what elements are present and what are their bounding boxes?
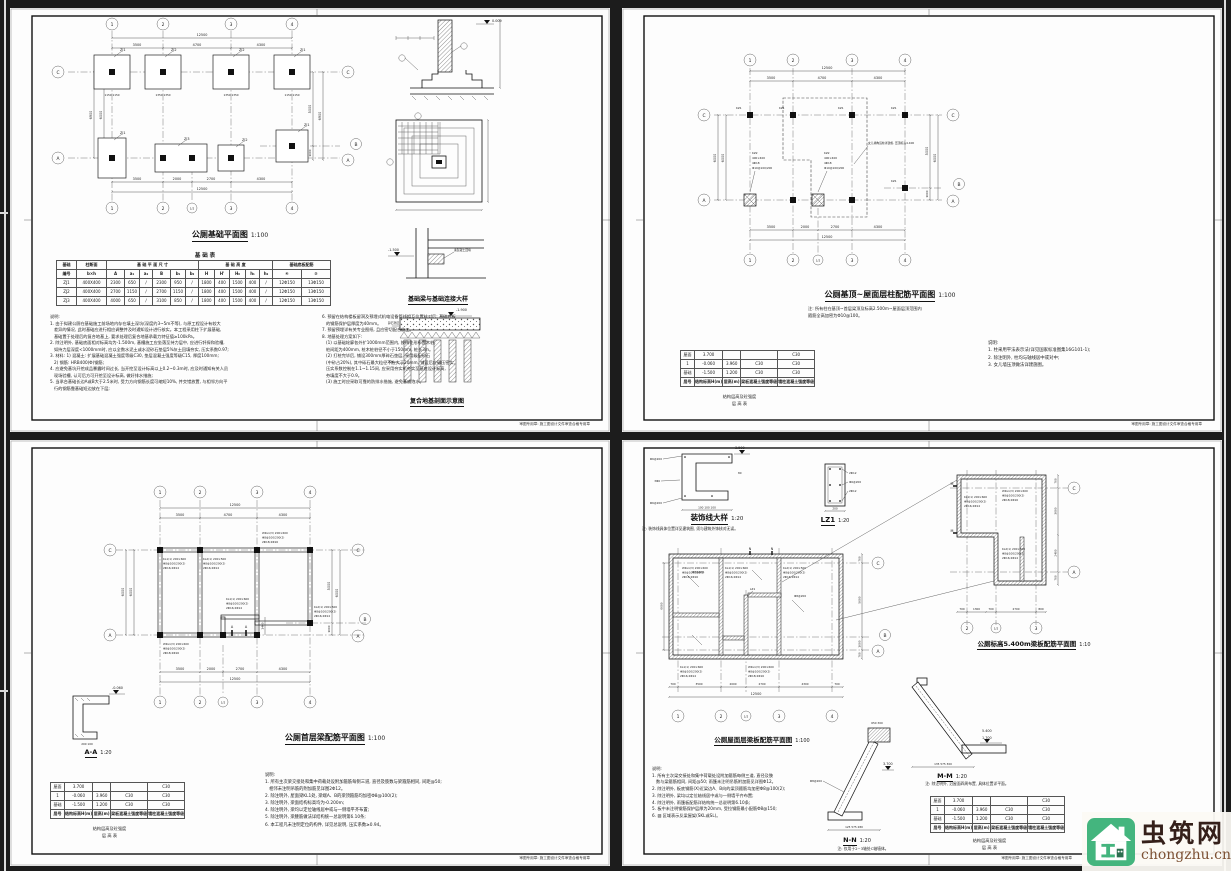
detail-title-scale: 1:20 <box>100 750 111 756</box>
dim-label: 3500 <box>133 177 142 181</box>
annotation-line: WKL1(3) 200×600 <box>163 642 189 646</box>
dim-label: 6000 <box>933 154 937 163</box>
dim-label: 700 <box>858 652 862 658</box>
axis-label: A <box>1072 570 1075 576</box>
level-label: 3.700 <box>883 762 893 766</box>
section-mark-label: A <box>245 625 248 629</box>
axis-label: A <box>108 633 111 639</box>
detail-title-text: 基础梁与基础连接大样 <box>408 294 468 305</box>
title-scale: 1:100 <box>368 735 385 742</box>
dim-label: 4700 <box>193 43 202 47</box>
dim-label: 4300 <box>801 682 808 686</box>
dim-label: 80 <box>738 471 742 475</box>
annotation-line: 2Φ18;2Φ16 <box>163 651 179 655</box>
annotation-line: 4Φ18 <box>824 161 832 165</box>
annotation-line: Φ8@100/200(2) <box>314 610 336 614</box>
dim-label: 6000 <box>121 588 125 597</box>
roof-plan: Φ8@200 Φ8@200 LZ1 N N WKL1(3) 200×600 Φ8… <box>660 547 891 722</box>
detail-title: A-A 1:20 <box>68 748 128 758</box>
detail-title-text: A-A <box>85 748 98 758</box>
drawing-title: 公厕基础平面图 1:100 <box>160 229 300 242</box>
annotation-line: Φ8@100/200(2) <box>163 647 185 651</box>
dim-label: 1400 <box>261 622 265 629</box>
dim-label: 4300 <box>874 225 883 229</box>
detail-title: N-N 1:20 <box>827 836 887 846</box>
axis-label: 3 <box>851 258 854 264</box>
page-edge-right <box>1224 0 1226 871</box>
detail-title: 复合地基剖面示意图 <box>382 396 492 407</box>
chongzhu-logo-icon <box>1087 818 1135 866</box>
dim-label: 12500 <box>822 235 833 239</box>
axis-label: 2 <box>966 626 969 632</box>
notes: 说明:1. 柱采用平法表示法(详见国家标准图集16G101-1);2. 除注明外… <box>988 340 1188 370</box>
column-annotation-kz2-1: KZ2 400×400 4Φ18 Φ10@100/200 <box>750 151 772 192</box>
pad-label: ZJ2 <box>242 138 247 142</box>
annotation-line: 2Φ16;2Φ14 <box>203 566 219 570</box>
annotation-line: 400×400 <box>752 156 765 160</box>
axis-label: 3 <box>1035 626 1038 632</box>
dim-label: 6000 <box>129 588 133 597</box>
annotation-line: Φ8@100/200(2) <box>682 571 704 575</box>
dim-label: 700 <box>670 682 676 686</box>
dim-label: 4300 <box>279 667 288 671</box>
dim-label: 200 100 <box>81 742 93 746</box>
axis-label: 1/2 <box>744 715 749 719</box>
dim-label: 3500 <box>176 667 185 671</box>
rebar-label: Φ6@200 <box>650 501 662 505</box>
detail-title: 基础梁与基础连接大样 <box>378 294 498 305</box>
axis-label: A <box>876 649 879 655</box>
elevation-5400-plan: M M KL1(1) 200×600 Φ8@100/200(2) 2Φ16;2Φ… <box>950 470 1080 634</box>
dim-label: 100 100 100 <box>698 506 716 510</box>
annotation-line: KL1(1) 200×600 <box>725 566 748 570</box>
dim-label: 2700 <box>831 225 840 229</box>
title-text: 公厕基顶~屋面层柱配筋平面图 <box>825 289 936 302</box>
footing-section-detail: 0.000 <box>396 19 502 100</box>
sheet-footer: 审图专用章: 施工图设计文件审查合格专用章 <box>340 422 590 427</box>
title-text: 公厕首层梁配筋平面图 <box>285 732 365 745</box>
pad-label: ZJ1 <box>120 131 125 135</box>
dim-label: 700 <box>834 682 840 686</box>
drawing-title: 公厕标高5.400m梁板配筋平面图 1:10 <box>944 638 1124 650</box>
floor-table: 屋面3.700C301-0.0603.960C30C30基础-1.5001.20… <box>930 796 1065 833</box>
pad-dim: 1150 1150 <box>104 93 119 97</box>
axis-label: 3 <box>230 206 233 212</box>
dim-label: 6900 <box>318 112 322 121</box>
detail-title-scale: 1:20 <box>731 516 743 522</box>
dim-label: 5000 <box>327 582 331 591</box>
notes: 说明:1. 所有主次梁交接处和集中荷载处设附加箍筋每侧三道, 直径及肢 数与梁箍… <box>652 766 824 820</box>
watermark-domain: chongzhu.cn <box>1141 848 1231 862</box>
detail-note: 注: 装饰线具体位置详见建筑图, 须与建筑外饰核对无误。 <box>642 526 802 532</box>
annotation-line: KZ2 <box>824 151 830 155</box>
sheet-footer: 审图专用章: 施工图设计文件审查合格专用章 <box>952 422 1202 427</box>
dim-label: 125 575 280 <box>845 825 863 829</box>
table-caption: 结构层高及砼强度层 高 表 <box>942 838 1037 851</box>
axis-label: 3 <box>230 22 233 28</box>
watermark-text: 虫筑网 chongzhu.cn <box>1141 821 1231 862</box>
annotation-line: KL2(1) 200×500 <box>203 557 226 561</box>
axis-label: 3 <box>851 58 854 64</box>
page-tick-left-1 <box>0 212 8 214</box>
foundation-table: 基础柱断面基 础 平 面 尺 寸基 础 高 度基础底板配筋编号b×hAa₁a₂B… <box>56 260 331 306</box>
section-marks: A A <box>231 625 248 636</box>
dim-label: 3500 <box>695 682 702 686</box>
annotation-line: KL1(1) 200×600 <box>163 557 186 561</box>
dim-label: 4700 <box>818 76 827 80</box>
dim-label: 5000 <box>925 147 929 156</box>
axis-label: 1 <box>159 490 162 496</box>
detail-title-text: LZ1 <box>821 516 835 526</box>
dim-label: 3500 <box>176 513 185 517</box>
annotation-line: KL1(1) 200×600 <box>226 597 249 601</box>
section-a-a-detail: -0.060 200 100 <box>73 686 125 746</box>
annotation-line: 2Φ18;2Φ16 <box>262 540 278 544</box>
title-text: 公厕标高5.400m梁板配筋平面图 <box>977 638 1076 650</box>
dim-label: 700 <box>1054 575 1058 581</box>
sheet-foundation-plan: 1 2 3 4 1 2 1/2 3 4 C A C B A <box>10 8 610 432</box>
pad-label: ZJ3 <box>184 137 189 141</box>
axis-label: 1/2 <box>190 207 195 211</box>
axis-label: 4 <box>309 700 312 706</box>
axis-label: C <box>1072 486 1075 492</box>
annotation-line: 2Φ18;2Φ16 <box>748 674 764 678</box>
dim-label: 1300 <box>973 607 980 611</box>
dim-label: 2700 <box>758 682 765 686</box>
axis-label: C <box>951 113 954 119</box>
annotation-line: 2Φ16;2Φ14 <box>314 614 330 618</box>
axis-label: 4 <box>291 22 294 28</box>
annotation-line: Φ8@100/200(2) <box>1002 552 1024 556</box>
annotation-line: 400×400 <box>824 156 837 160</box>
table-caption: 结构层高及砼强度层 高 表 <box>62 826 157 839</box>
detail-title-scale: 1:20 <box>838 518 849 524</box>
dim-label: 5000 <box>308 105 312 114</box>
dim-label: 12500 <box>197 187 208 191</box>
watermark: 虫筑网 chongzhu.cn <box>1082 812 1231 871</box>
rebar-label: 2Φ12 <box>849 489 857 493</box>
annotation-line: Φ8@100/200(2) <box>783 571 805 575</box>
dim-label: 12500 <box>230 677 241 681</box>
dim-label: 1000 <box>308 149 312 156</box>
annotation-line: KL1(1) 200×600 <box>680 665 703 669</box>
axis-label: 2 <box>162 206 165 212</box>
table-title: 基 础 表 <box>160 251 250 259</box>
axis-label: A <box>346 158 349 164</box>
axis-label: 1/2 <box>221 701 226 705</box>
annotation-line: 2Φ16;2Φ14 <box>964 504 980 508</box>
notes-left: 说明:1. 由于拟建公厕在基础施工前场地内存在填土深坑(深度约3~5m不等), … <box>50 314 318 392</box>
axis-label: 1/2 <box>816 259 821 263</box>
footing-plan-detail <box>387 113 488 210</box>
title-text: 公厕屋面层梁板配筋平面图 <box>714 734 792 746</box>
dim-label: 4300 <box>874 76 883 80</box>
axis-label: A <box>702 198 705 204</box>
drawing-title: 公厕屋面层梁板配筋平面图 1:100 <box>692 734 832 746</box>
axis-label: 2 <box>792 58 795 64</box>
detail-title-text: 复合地基剖面示意图 <box>410 396 464 407</box>
axis-label: 1/2 <box>994 627 999 631</box>
axis-label: 1 <box>749 258 752 264</box>
level-label: 5.400 <box>982 729 992 733</box>
dim-label: 3500 <box>767 225 776 229</box>
notes-right: 6. 预留在结构楼板留洞及预埋式机电设备管线相互位置核对后; 基础底板 的钢筋保… <box>322 314 572 386</box>
annotation-line: Φ8@100/200(2) <box>725 571 747 575</box>
dim-label: 650 300 <box>871 721 883 725</box>
axis-label: 4 <box>904 258 907 264</box>
title-note: 注: 所有柱在基顶~首层梁顶及标高2.500m~屋面层顶范围内箍筋全高加密为Φ1… <box>808 306 988 319</box>
column-label: KZ1 <box>779 106 785 110</box>
section-m-m-detail: 5.400 1.700 135 575 300 <box>912 678 1006 767</box>
axis-label: A <box>951 199 954 205</box>
annotation-line: Φ8@100/200(2) <box>680 670 702 674</box>
title-scale: 1:100 <box>938 292 955 299</box>
dim-label: 4300 <box>257 177 266 181</box>
annotation-line: Φ8@100/200(2) <box>203 562 225 566</box>
axis-label: C <box>356 548 359 554</box>
axis-label: B <box>354 142 357 148</box>
level-label: 0.000 <box>492 19 502 23</box>
annotation-line: 2Φ16;2Φ14 <box>163 566 179 570</box>
cad-drawing-viewer: 1 2 3 4 1 2 1/2 3 4 C A C B A <box>0 0 1231 871</box>
detail-note: 注: 除注明外, 沿屋面四周布置, 具体位置详平面。 <box>907 781 1027 787</box>
rebar-label: Φ6@200 <box>849 480 861 484</box>
axis-label: C <box>702 113 705 119</box>
title-text: 公厕基础平面图 <box>192 229 248 242</box>
rebar-label: Φ8@200 <box>794 594 806 598</box>
dim-label: 6000 <box>713 154 717 163</box>
level-label: -1.500 <box>388 248 399 252</box>
detail-title-scale: 1:20 <box>956 774 967 780</box>
dim-label: 2700 <box>207 177 216 181</box>
dim-label: 2400 <box>1054 549 1058 556</box>
foundation-pads: ZJ1 ZJ2 ZJ2 ZJ1 1150 1150 1350 1350 1350… <box>94 48 310 178</box>
sheet-column-plan: 1 2 3 4 1 2 1/2 3 4 C A C B A <box>622 8 1222 432</box>
detail-note: 注: 仅用于2~3轴处C轴墙体。 <box>818 846 908 852</box>
dim-label: 6900 <box>89 111 93 120</box>
dim-label: 5000 <box>858 596 862 603</box>
column-label: KZ1 <box>891 179 897 183</box>
detail-connector-lines <box>782 480 994 620</box>
dim-label: 700 <box>988 607 994 611</box>
sheet-footer: 审图专用章: 施工图设计文件审查合格专用章 <box>340 856 590 861</box>
drawing-title: 公厕基顶~屋面层柱配筋平面图 1:100 <box>790 289 990 302</box>
axis-label: 4 <box>831 714 834 720</box>
dim-label: 700 <box>1054 478 1058 484</box>
dim-label: 700 <box>858 556 862 562</box>
page-edge-left <box>4 0 6 871</box>
axis-label: 2 <box>162 22 165 28</box>
dimensions: 12500 3500 4700 4300 3500 2000 2700 4300… <box>121 503 340 682</box>
sheet-footer: 审图专用章: 施工图设计文件审查合格专用章 <box>862 856 1072 861</box>
axis-label: C <box>108 548 111 554</box>
material-label: 素混凝土回填 <box>454 248 471 252</box>
annotation-line: WKL1(3) 200×600 <box>748 665 774 669</box>
detail-title-text: 装饰线大样 <box>691 512 729 525</box>
dim-label: 6000 <box>99 111 103 120</box>
detail-title-scale: 1:20 <box>860 838 871 844</box>
annotation-line: Φ8@100/200(2) <box>226 602 248 606</box>
annotation-line: 2Φ16;2Φ14 <box>226 606 242 610</box>
annotation-line: Φ8@100/200(2) <box>964 500 986 504</box>
axis-label: C <box>346 70 349 76</box>
dim-label: 1000 <box>925 190 929 197</box>
annotation-line: Φ8@100/200(2) <box>1002 494 1024 498</box>
axis-label: A <box>56 156 59 162</box>
annotation-line: WKL1(3) 200×600 <box>262 531 288 535</box>
rebar-label: 3Φ6 <box>654 479 660 483</box>
axis-label: 3 <box>256 700 259 706</box>
annotation-line: KZ2 <box>752 151 758 155</box>
dim-label: 1000 <box>327 625 331 632</box>
dim-label: 4300 <box>279 513 288 517</box>
dim-label: 12500 <box>230 503 241 507</box>
annotation-line: KL1(1) 200×600 <box>964 495 987 499</box>
section-mark-label: A <box>231 625 234 629</box>
watermark-name: 虫筑网 <box>1141 821 1231 846</box>
axis-label: 1 <box>677 714 680 720</box>
axis-label: 2 <box>792 258 795 264</box>
axis-label: 1 <box>749 58 752 64</box>
axis-label: C <box>56 70 59 76</box>
column-label: KZ1 <box>736 106 742 110</box>
axis-label: B <box>883 633 886 639</box>
annotation-line: 2Φ16;2Φ14 <box>680 674 696 678</box>
annotation-line: 2Φ16;2Φ14 <box>725 575 741 579</box>
axis-label: 2 <box>199 700 202 706</box>
annotation-line: KL2(1) 200×500 <box>1002 547 1025 551</box>
dim-label: 6000 <box>335 589 339 598</box>
axis-label: B <box>957 182 960 188</box>
detail-title: LZ1 1:20 <box>810 516 860 526</box>
axis-label: 1 <box>159 700 162 706</box>
dim-label: 3500 <box>767 76 776 80</box>
parapet-annotation: 女儿墙构造柱详建施, 压顶标高4.400 <box>854 141 914 164</box>
annotation-line: Φ8@100/200(2) <box>163 562 185 566</box>
pad-label: ZJ1 <box>304 123 309 127</box>
axis-label: 2 <box>720 714 723 720</box>
annotation-line: Φ10@100/200 <box>824 166 844 170</box>
level-label: 1.700 <box>982 736 992 740</box>
level-label: -1.900 <box>456 308 467 312</box>
dim-label: 2700 <box>1012 607 1019 611</box>
dim-label: 2000 <box>207 667 216 671</box>
pad-dim: 1350 1350 <box>223 93 238 97</box>
page-tick-left-2 <box>0 690 8 692</box>
dim-label: 700 <box>959 607 965 611</box>
title-scale: 1:100 <box>251 232 268 239</box>
axis-label: 4 <box>904 58 907 64</box>
beam-connection-detail: -1.500 素混凝土回填 <box>388 228 486 278</box>
dim-label: 6000 <box>721 154 725 163</box>
annotation-line: Φ8@100/200(2) <box>748 670 770 674</box>
title-scale: 1:100 <box>795 738 809 744</box>
annotation-line: Φ10@100/200 <box>752 166 772 170</box>
dim-label: 200 <box>832 507 838 511</box>
floor-table: 屋面3.700C301-0.0603.960C30C30基础-1.5001.20… <box>50 782 185 819</box>
dim-label: 2000 <box>173 177 182 181</box>
dim-label: 12500 <box>751 692 762 696</box>
drawing-title: 公厕首层梁配筋平面图 1:100 <box>235 732 435 745</box>
annotation-line: 2Φ18;2Φ16 <box>1002 498 1018 502</box>
floor-table: 屋面3.700C301-0.0603.960C30C30基础-1.5001.20… <box>680 350 815 387</box>
axis-label: 3 <box>256 490 259 496</box>
section-mark-label: N <box>749 547 752 551</box>
annotation-line: WKL1(3) 200×600 <box>682 566 708 570</box>
annotation-line: KL2(1) 200×500 <box>783 566 806 570</box>
axis-label: 1 <box>111 206 114 212</box>
dim-label: 4700 <box>224 513 233 517</box>
detail-title-text: N-N <box>843 836 857 846</box>
dim-label: 12500 <box>197 33 208 37</box>
decorative-line-detail: 3.500 Φ6@200 3Φ6 Φ6@200 100 100 100 80 <box>650 446 750 510</box>
dim-label: 2700 <box>236 667 245 671</box>
dim-label: 2000 <box>801 225 810 229</box>
annotation-line: 2Φ18;2Φ16 <box>682 575 698 579</box>
axis-label: A <box>356 634 359 640</box>
rebar-label: 2Φ12 <box>849 471 857 475</box>
notes: 说明:1. 所有主次梁交接处和集中荷载处设附加箍筋每侧三道, 直径及肢数与梁箍筋… <box>265 772 515 829</box>
annotation-line: WKL1(3) 200×600 <box>1002 489 1028 493</box>
title-scale: 1:10 <box>1079 642 1090 648</box>
lz1-detail: 200 2Φ12 Φ6@200 2Φ12 <box>825 464 861 511</box>
dim-label: 800 <box>1038 607 1044 611</box>
dim-label: 1000 <box>858 640 862 647</box>
sheet-first-floor-beam-plan: 1 2 3 4 1 2 1/2 3 4 C A C B A <box>10 440 610 866</box>
axis-label: 4 <box>309 490 312 496</box>
axis-label: 2 <box>199 490 202 496</box>
dim-label: 2000 <box>729 682 736 686</box>
annotation-line: 女儿墙构造柱详建施, 压顶标高4.400 <box>868 141 914 145</box>
annotation-line: 4Φ18 <box>752 161 760 165</box>
sheet-roof-details: 3.500 Φ6@200 3Φ6 Φ6@200 100 100 100 80 2… <box>622 440 1222 866</box>
pad-label: ZJ2 <box>239 48 244 52</box>
rebar-label: Φ6@200 <box>650 457 662 461</box>
axis-label: 1 <box>111 22 114 28</box>
table-caption: 结构层高及砼强度层 高 表 <box>692 394 787 407</box>
pad-label: ZJ1 <box>120 48 125 52</box>
section-mark-label: N <box>771 547 774 551</box>
axis-label: 3 <box>778 714 781 720</box>
pad-dim: 1150 1150 <box>284 93 299 97</box>
axis-label: C <box>876 561 879 567</box>
dim-label: 6000 <box>660 602 664 609</box>
level-label: 3.500 <box>735 446 745 450</box>
dim-label: 3500 <box>133 43 142 47</box>
dim-label: 12500 <box>822 66 833 70</box>
annotation-line: 2Φ16;2Φ14 <box>1002 556 1018 560</box>
level-label: -0.060 <box>112 686 123 690</box>
column-label: KZ1 <box>891 106 897 110</box>
axis-label: 4 <box>291 206 294 212</box>
dim-label: 3600 <box>1054 507 1058 514</box>
pad-label: ZJ1 <box>300 48 305 52</box>
annotation-line: Φ8@100/200(2) <box>262 536 284 540</box>
axis-label: B <box>363 617 366 623</box>
detail-title: 装饰线大样 1:20 <box>667 512 767 525</box>
column-annotation-kz2-2: KZ2 400×400 4Φ18 Φ10@100/200 <box>818 151 844 192</box>
annotation-line: KL2(1) 200×500 <box>314 605 337 609</box>
column-label: LZ1 <box>750 587 755 591</box>
pad-dim: 1350 1350 <box>155 93 170 97</box>
annotation-line: 2Φ16;2Φ14 <box>783 575 799 579</box>
column-label: KZ1 <box>838 106 844 110</box>
pad-label: ZJ2 <box>171 48 176 52</box>
dim-label: 135 575 300 <box>934 762 952 766</box>
dim-label: 4300 <box>257 43 266 47</box>
